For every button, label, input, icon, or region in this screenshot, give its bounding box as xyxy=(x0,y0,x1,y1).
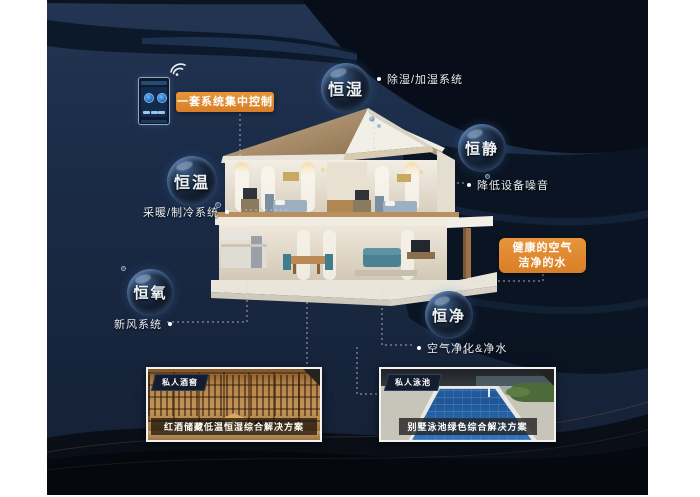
note-label: 空气净化&净水 xyxy=(427,340,507,356)
central-control-label: 一套系统集中控制 xyxy=(176,92,274,112)
pool-ladder xyxy=(488,387,490,397)
note-fresh-air-system: 新风系统 xyxy=(114,316,172,332)
bubble-constant-quiet: 恒静 xyxy=(458,124,506,172)
note-label: 新风系统 xyxy=(114,316,162,332)
note-label: 降低设备噪音 xyxy=(477,177,549,193)
bubble-constant-oxygen: 恒氧 xyxy=(127,269,174,316)
wine-caption: 红酒储藏低温恒湿综合解决方案 xyxy=(151,418,317,435)
note-air-water-purification: 空气净化&净水 xyxy=(417,340,507,356)
note-label: 除湿/加湿系统 xyxy=(387,71,463,87)
phone-dial-left xyxy=(144,93,154,103)
phone-screen xyxy=(141,87,167,117)
mini-bubble xyxy=(377,124,381,128)
photo-private-pool: 私人泳池 别墅泳池绿色综合解决方案 xyxy=(379,367,556,442)
note-label: 采暖/制冷系统 xyxy=(143,204,219,220)
bullet-dot xyxy=(168,322,172,326)
phone-readouts xyxy=(143,111,165,114)
phone-dial-right xyxy=(157,93,167,103)
phone-status-bar xyxy=(141,81,167,85)
photo-private-wine-cellar: 私人酒窖 红酒储藏低温恒湿综合解决方案 xyxy=(146,367,322,442)
pool-badge: 私人泳池 xyxy=(384,374,442,391)
pool-caption: 别墅泳池绿色综合解决方案 xyxy=(398,418,536,435)
bullet-dot xyxy=(417,346,421,350)
wine-badge: 私人酒窖 xyxy=(151,374,209,391)
bubble-constant-purity: 恒净 xyxy=(425,291,473,339)
note-noise-reduction: 降低设备噪音 xyxy=(467,177,549,193)
bullet-dot xyxy=(225,210,229,214)
callout-line1: 健康的空气 xyxy=(499,241,586,256)
bullet-dot xyxy=(467,183,471,187)
poster-canvas: 一套系统集中控制 恒湿 恒静 恒温 恒氧 恒净 除湿/加湿系统 降低设备噪音 采… xyxy=(47,0,648,495)
smart-controller-phone xyxy=(138,77,170,125)
note-heating-cooling-system: 采暖/制冷系统 xyxy=(143,204,229,220)
mini-bubble xyxy=(121,266,126,271)
phone-nav-bar xyxy=(141,120,167,123)
note-dehumidify-system: 除湿/加湿系统 xyxy=(377,71,463,87)
bullet-dot xyxy=(377,77,381,81)
mini-bubble xyxy=(369,116,375,122)
callout-line2: 洁净的水 xyxy=(499,256,586,271)
bubble-constant-humidity: 恒湿 xyxy=(321,63,371,113)
healthy-air-water-callout: 健康的空气 洁净的水 xyxy=(499,238,586,273)
bubble-constant-temperature: 恒温 xyxy=(167,156,217,206)
house-cutaway-illustration xyxy=(205,104,497,310)
wifi-signal-icon xyxy=(169,60,187,76)
